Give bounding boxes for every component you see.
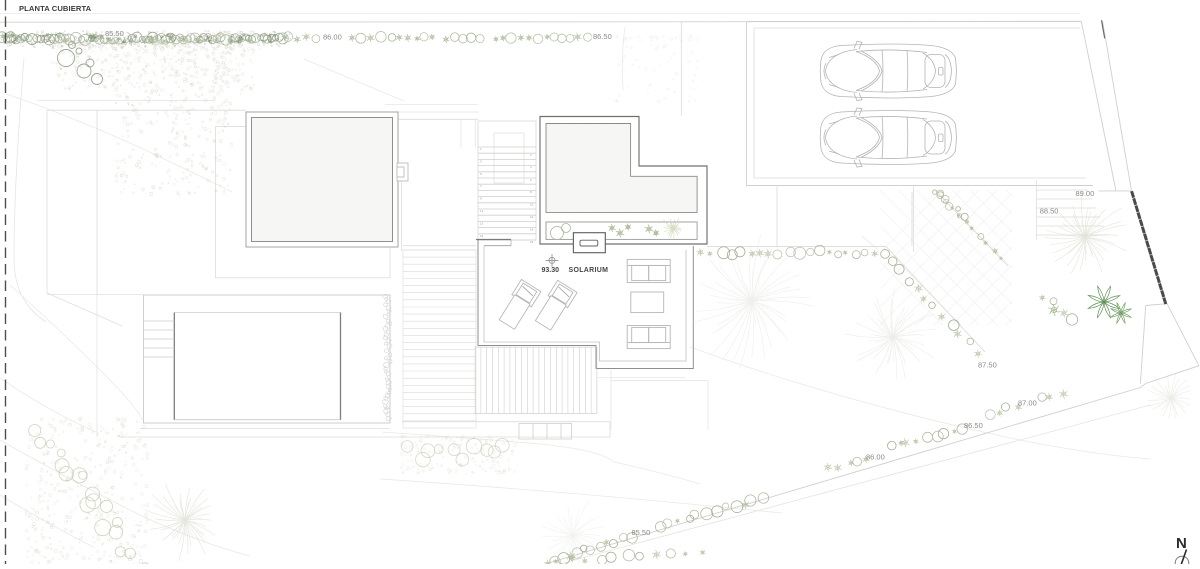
- svg-text:13: 13: [480, 221, 484, 225]
- svg-text:SOLARIUM: SOLARIUM: [569, 267, 609, 274]
- svg-text:12: 12: [530, 215, 534, 219]
- svg-text:86.50: 86.50: [964, 421, 983, 430]
- svg-text:86.50: 86.50: [593, 32, 612, 41]
- svg-text:10: 10: [530, 203, 534, 207]
- svg-text:15: 15: [480, 234, 484, 238]
- svg-text:88.50: 88.50: [1040, 207, 1059, 216]
- svg-text:89.00: 89.00: [1076, 189, 1095, 198]
- svg-text:87.50: 87.50: [978, 361, 997, 370]
- svg-text:85.50: 85.50: [105, 29, 124, 38]
- svg-text:PLANTA CUBIERTA: PLANTA CUBIERTA: [19, 4, 92, 13]
- svg-text:87.00: 87.00: [1018, 399, 1037, 408]
- svg-text:11: 11: [480, 209, 483, 213]
- svg-text:86.00: 86.00: [323, 33, 342, 42]
- svg-text:N: N: [1176, 535, 1187, 552]
- svg-text:14: 14: [530, 227, 534, 231]
- svg-text:93.30: 93.30: [542, 267, 560, 274]
- svg-text:85.50: 85.50: [632, 528, 651, 537]
- svg-text:16: 16: [530, 240, 534, 244]
- svg-text:86.00: 86.00: [866, 453, 885, 462]
